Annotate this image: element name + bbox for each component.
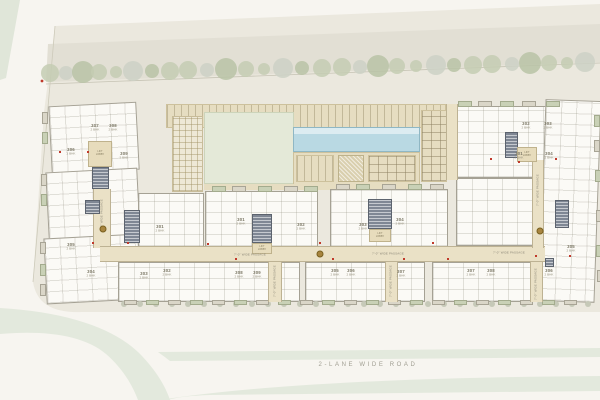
unit-label: 3042 BHK [545, 152, 554, 160]
shrub-icon [313, 301, 319, 307]
balcony [382, 184, 396, 190]
balcony [124, 300, 137, 305]
unit-label: 3022 BHK [522, 122, 531, 130]
boundary-marker [41, 80, 44, 83]
balcony [41, 174, 47, 186]
bottom-row-block-east [432, 262, 532, 302]
tree-icon [410, 60, 422, 72]
passage-label: 7'-0" WIDE PASSAGE [234, 254, 266, 257]
balcony [168, 300, 181, 305]
balcony [564, 300, 577, 305]
tree-icon [353, 60, 367, 74]
pergola [296, 155, 334, 182]
stem-block [138, 193, 204, 247]
balcony [542, 300, 555, 305]
balcony [232, 186, 246, 192]
swimming-pool [293, 127, 420, 152]
red-door-marker [518, 161, 520, 163]
balcony [146, 300, 159, 305]
road-label: 2-LANE WIDE ROAD [319, 362, 418, 368]
lift-lobby-label: LIFTLOBBY [376, 232, 384, 238]
balcony [322, 300, 335, 305]
stair-core-stem [124, 210, 140, 243]
unit-label: 3032 BHK [140, 272, 149, 280]
tree-icon [464, 56, 482, 74]
stair-core-center-east [368, 199, 392, 229]
balcony [300, 300, 313, 305]
unit-label: 3072 BHK [467, 269, 476, 277]
balcony [42, 112, 48, 124]
tree-icon [313, 59, 331, 77]
red-door-marker [490, 158, 492, 160]
tree-icon [389, 58, 405, 74]
balcony [408, 184, 422, 190]
balcony [366, 300, 379, 305]
balcony [336, 184, 350, 190]
tree-icon [447, 58, 461, 72]
site-plan-canvas: 2-LANE WIDE ROAD 3072 BHK3082 BHK3062 BH… [0, 0, 600, 400]
unit-label: 3092 BHK [253, 271, 262, 279]
balcony [41, 194, 47, 206]
shrub-icon [425, 301, 431, 307]
red-door-marker [92, 242, 94, 244]
balcony [596, 245, 600, 257]
bottom-row-block-center [305, 262, 425, 302]
stair-core-center-west [252, 214, 272, 243]
central-lawn [204, 112, 294, 184]
balcony [546, 101, 560, 107]
gold-column-marker [537, 228, 544, 235]
balcony [284, 186, 298, 192]
balcony [498, 300, 511, 305]
red-door-marker [535, 255, 537, 257]
balcony [500, 101, 514, 107]
balcony [596, 210, 600, 222]
unit-label: 3042 BHK [396, 218, 405, 226]
unit-label: 3062 BHK [67, 148, 76, 156]
passage-label: 7'-0" WIDE PASSAGE [493, 252, 525, 255]
lift-lobby-label: LIFTLOBBY [523, 151, 531, 157]
balcony [476, 300, 489, 305]
unit-label: 3072 BHK [91, 124, 100, 132]
stair-core-left [92, 167, 109, 189]
lift-lobby-label: LIFTLOBBY [96, 150, 104, 156]
unit-label: 3042 BHK [87, 270, 96, 278]
passage-label-vertical: 7'-0" WIDE PASSAGE [535, 268, 538, 300]
stair-core-left-lower [85, 200, 100, 214]
balcony [212, 300, 225, 305]
unit-label: 3062 BHK [545, 269, 554, 277]
balcony [356, 184, 370, 190]
lift-shaft-right-lower [545, 258, 554, 267]
unit-label: 3082 BHK [487, 269, 496, 277]
gold-column-marker [100, 226, 107, 233]
balcony [430, 184, 444, 190]
tree-icon [238, 61, 254, 77]
red-door-marker [555, 158, 557, 160]
red-door-marker [332, 258, 334, 260]
tree-icon [505, 57, 519, 71]
right-stem-block [456, 178, 540, 246]
shrub-icon [585, 301, 591, 307]
balcony [458, 101, 472, 107]
balcony [212, 186, 226, 192]
balcony [454, 300, 467, 305]
paved-patch [338, 155, 364, 182]
balcony [304, 186, 318, 192]
balcony [234, 300, 247, 305]
unit-label: 3082 BHK [235, 271, 244, 279]
unit-label: 3032 BHK [359, 223, 368, 231]
balcony [594, 115, 600, 127]
unit-label: 3022 BHK [297, 223, 306, 231]
unit-label: 3062 BHK [347, 269, 356, 277]
tree-icon [41, 64, 59, 82]
unit-label: 3072 BHK [397, 270, 406, 278]
balcony [432, 300, 445, 305]
balcony [40, 242, 46, 254]
unit-label: 3052 BHK [331, 269, 340, 277]
play-court-grid [172, 116, 203, 192]
unit-label: 3052 BHK [67, 243, 76, 251]
tree-icon [161, 62, 179, 80]
unit-label: 3012 BHK [237, 218, 246, 226]
red-door-marker [87, 151, 89, 153]
unit-label: 3092 BHK [120, 152, 129, 160]
cabana-deck [421, 110, 447, 182]
courtyard-side-passage [446, 104, 458, 180]
red-door-marker [207, 243, 209, 245]
passage-label-vertical: 7'-0" WIDE PASSAGE [390, 265, 393, 297]
tree-icon [110, 66, 122, 78]
stair-core-right [555, 200, 569, 228]
tree-icon [258, 63, 270, 75]
shrub-icon [249, 301, 255, 307]
unit-label: 3032 BHK [544, 122, 553, 130]
red-door-marker [59, 151, 61, 153]
red-door-marker [447, 258, 449, 260]
balcony [344, 300, 357, 305]
balcony [190, 300, 203, 305]
unit-label: 3022 BHK [163, 269, 172, 277]
balcony [594, 140, 600, 152]
balcony [258, 186, 272, 192]
passage-label-vertical: 7'-0" WIDE PASSAGE [537, 174, 540, 206]
balcony [595, 170, 600, 182]
unit-label: 3052 BHK [567, 245, 576, 253]
balcony [40, 264, 46, 276]
red-door-marker [432, 242, 434, 244]
lift-lobby-label: LIFTLOBBY [258, 245, 266, 251]
tree-icon [59, 66, 73, 80]
tree-icon [200, 63, 214, 77]
red-door-marker [569, 255, 571, 257]
red-door-marker [235, 258, 237, 260]
outdoor-seating [368, 155, 416, 182]
balcony [478, 101, 492, 107]
balcony [522, 101, 536, 107]
tree-icon [541, 55, 557, 71]
tree-icon [295, 61, 309, 75]
passage-label-vertical: 7'-0" WIDE PASSAGE [274, 265, 277, 297]
tree-icon [91, 64, 107, 80]
unit-label: 3012 BHK [156, 225, 165, 233]
gold-column-marker [317, 251, 324, 258]
red-door-marker [127, 242, 129, 244]
balcony [40, 284, 46, 296]
passage-label: 7'-0" WIDE PASSAGE [372, 253, 404, 256]
tree-icon [561, 57, 573, 69]
shrub-icon [489, 301, 495, 307]
red-door-marker [403, 258, 405, 260]
balcony [410, 300, 423, 305]
tree-icon [145, 64, 159, 78]
shrub-icon [137, 301, 143, 307]
unit-label: 3082 BHK [109, 124, 118, 132]
balcony [42, 132, 48, 144]
red-door-marker [319, 242, 321, 244]
